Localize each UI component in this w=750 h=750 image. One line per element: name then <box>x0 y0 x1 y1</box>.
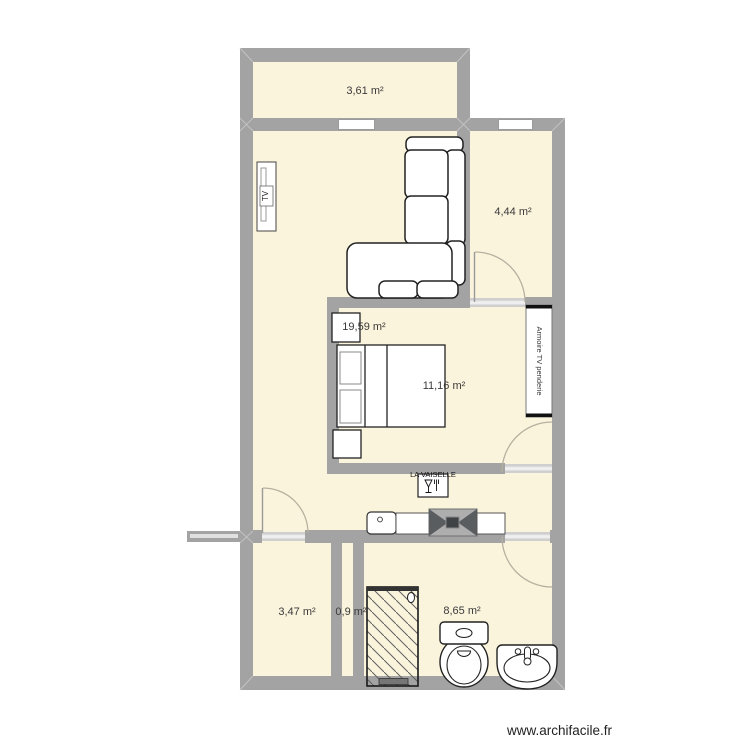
toilet[interactable] <box>440 622 488 687</box>
furniture-layer: TV Armoire TV penderie LA <box>0 0 750 750</box>
sofa[interactable] <box>347 137 465 298</box>
door-bathroom[interactable] <box>502 537 552 587</box>
wardrobe[interactable]: Armoire TV penderie <box>526 305 552 417</box>
counter-2 <box>477 513 505 534</box>
door-upper-right[interactable] <box>475 252 525 302</box>
area-label-bedroom: 11,16 m² <box>423 380 466 392</box>
counter-1 <box>396 513 429 534</box>
door-living[interactable] <box>263 488 308 533</box>
watermark: www.archifacile.fr <box>507 723 612 738</box>
area-label-upper-right: 4,44 m² <box>494 206 531 218</box>
tv-label: TV <box>261 190 270 201</box>
area-label-living: 19,59 m² <box>342 321 385 333</box>
area-label-top-room: 3,61 m² <box>346 85 383 97</box>
area-label-bathroom: 8,65 m² <box>443 605 480 617</box>
area-label-shaft: 0,9 m² <box>335 606 366 618</box>
area-label-bottom-left: 3,47 m² <box>278 606 315 618</box>
nightstand-bottom[interactable] <box>333 430 361 458</box>
bathroom-sink[interactable] <box>497 645 557 689</box>
dishwasher-label: LA VAISELLE <box>410 470 456 479</box>
dishwasher[interactable]: LA VAISELLE <box>410 470 456 497</box>
extractor-hood[interactable] <box>429 509 477 536</box>
shower[interactable] <box>367 587 418 686</box>
tv-unit[interactable]: TV <box>257 162 276 231</box>
washer <box>367 512 396 534</box>
floor-plan-canvas: TV Armoire TV penderie LA <box>0 0 750 750</box>
kitchen-counter[interactable] <box>367 509 505 536</box>
wardrobe-label: Armoire TV penderie <box>535 326 544 395</box>
door-corridor[interactable] <box>502 422 552 472</box>
